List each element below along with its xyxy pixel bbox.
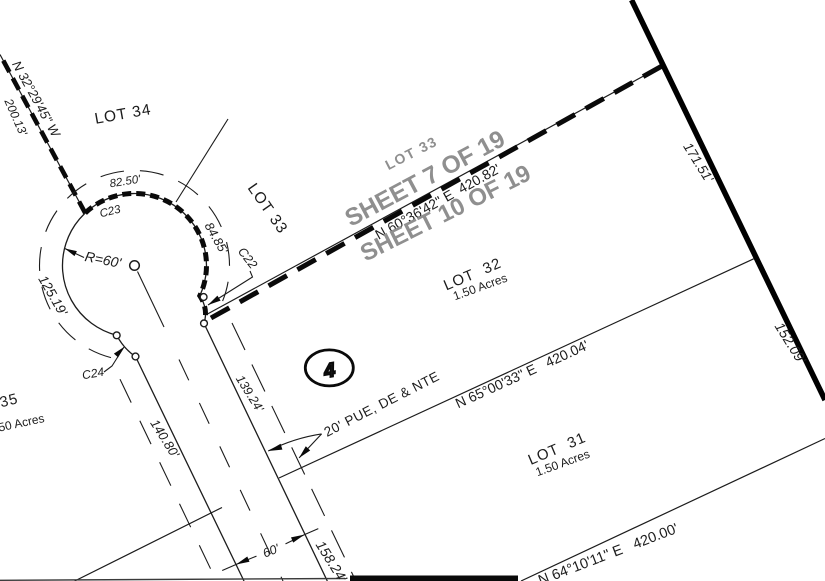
svg-text:140.80': 140.80': [147, 417, 182, 461]
svg-text:1.50 Acres: 1.50 Acres: [0, 411, 46, 436]
svg-text:C23: C23: [99, 203, 123, 220]
svg-text:4: 4: [321, 359, 337, 383]
svg-text:N 64°10'11" E 420.00': N 64°10'11" E 420.00': [536, 521, 681, 581]
svg-text:LOT 33: LOT 33: [244, 180, 291, 237]
svg-text:C22: C22: [235, 245, 260, 272]
svg-text:N 65°00'33" E 420.04': N 65°00'33" E 420.04': [453, 337, 591, 411]
svg-text:158.24': 158.24': [313, 538, 351, 581]
svg-text:60': 60': [261, 541, 282, 560]
svg-text:152.09': 152.09': [772, 319, 810, 367]
svg-text:LOT 34: LOT 34: [93, 101, 153, 128]
svg-text:20' PUE, DE & NTE: 20' PUE, DE & NTE: [322, 368, 442, 439]
svg-text:82.50': 82.50': [109, 174, 142, 191]
svg-text:R=60': R=60': [84, 248, 124, 271]
svg-text:125.19': 125.19': [35, 273, 70, 319]
svg-text:C24: C24: [81, 365, 105, 383]
svg-text:84.85': 84.85': [202, 220, 231, 257]
